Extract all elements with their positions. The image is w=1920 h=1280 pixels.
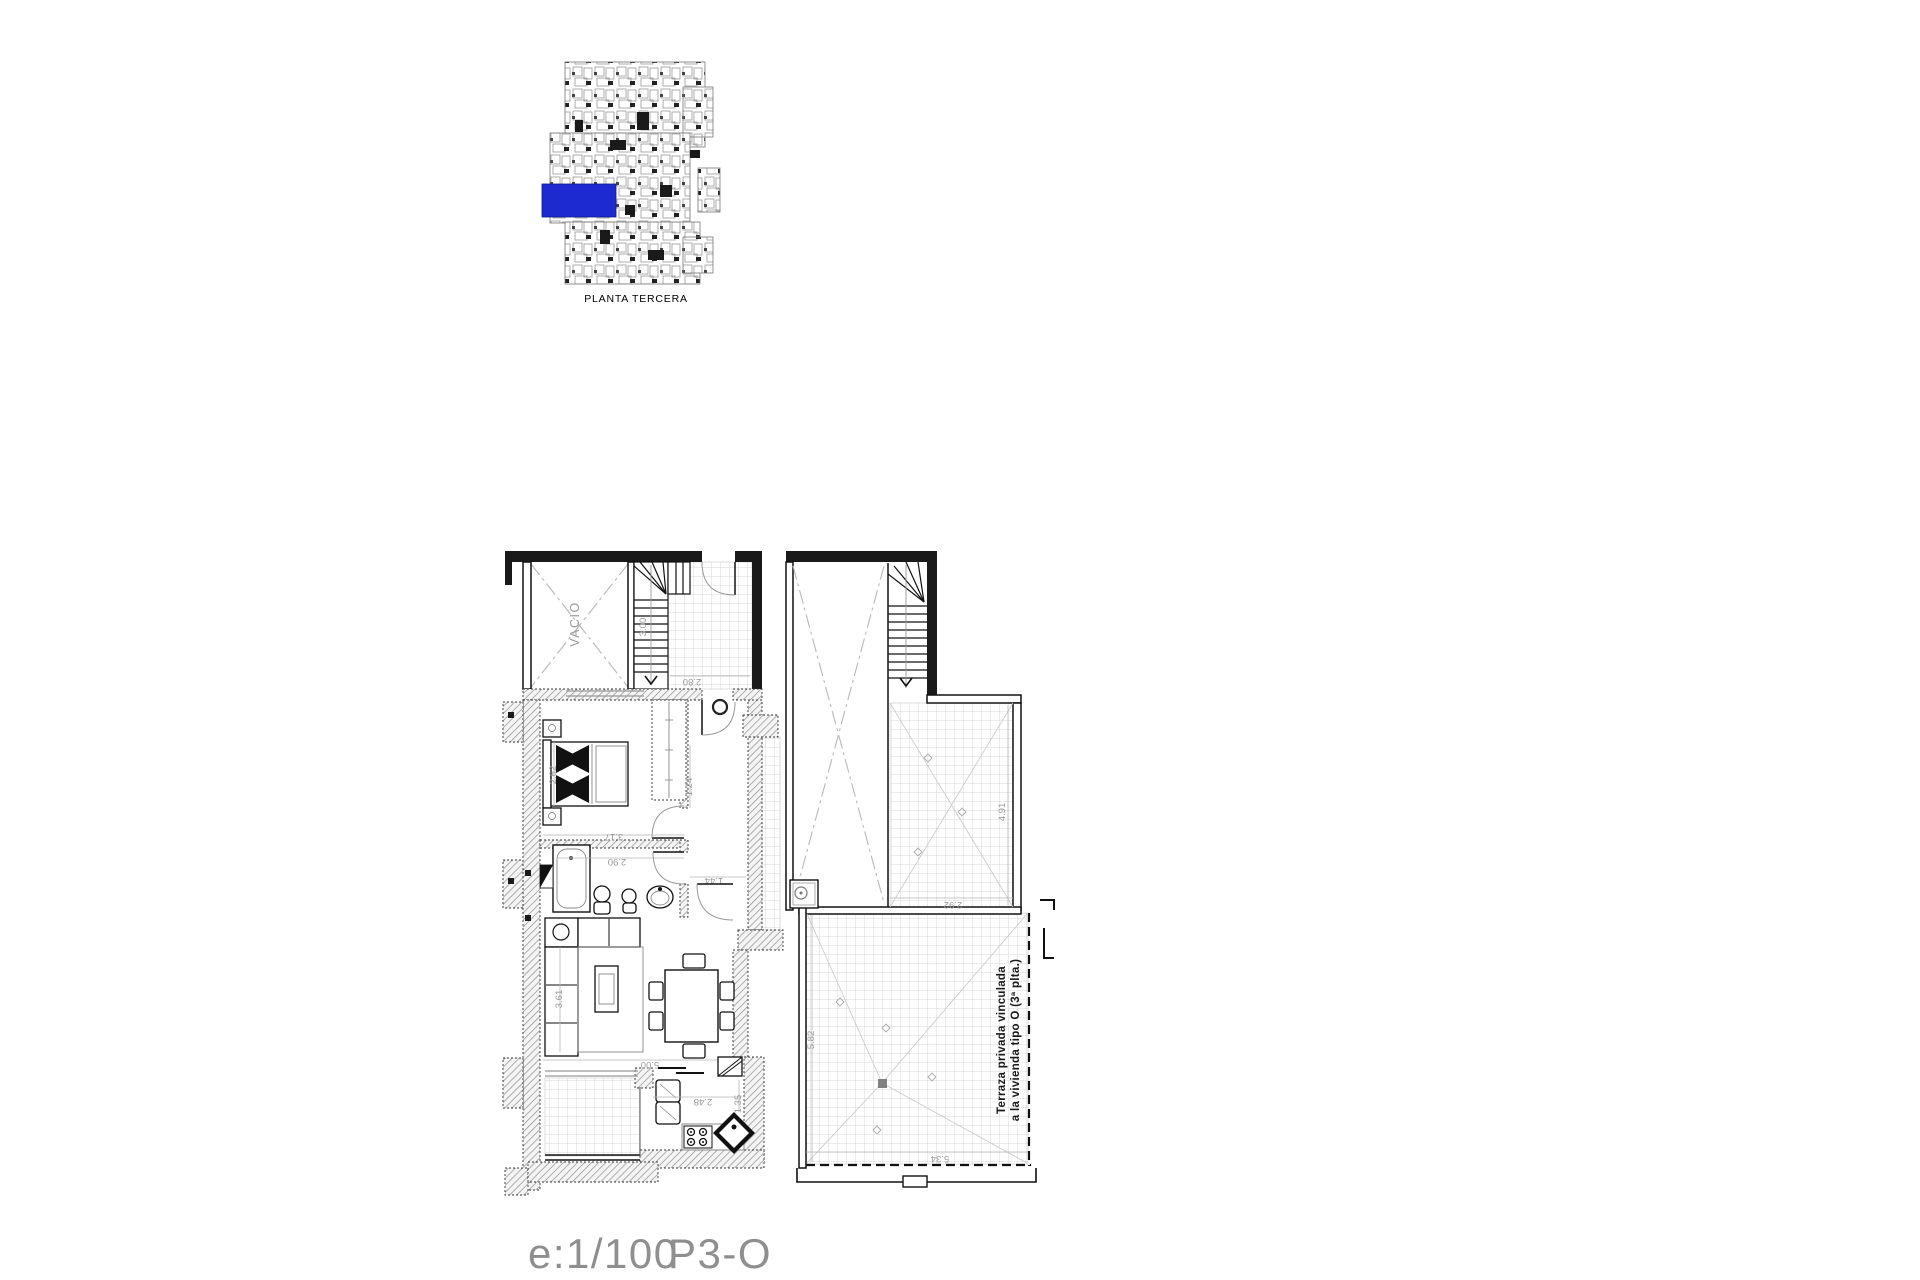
living-window: [545, 1071, 638, 1076]
floor-plan-page: PLANTA TERCERA VACIO: [0, 0, 1920, 1280]
dim-main-terrace-depth: 5.82: [806, 1031, 817, 1050]
void-label: VACIO: [568, 601, 582, 646]
dim-kitchen-width: 2.48: [694, 1096, 713, 1107]
void-area: VACIO: [531, 564, 628, 687]
key-plan-title: PLANTA TERCERA: [584, 293, 688, 305]
bathtub: [553, 845, 590, 912]
bedroom: 3.17 2.62: [543, 691, 686, 842]
dim-main-terrace-width: 5.34: [931, 1153, 950, 1164]
key-plan-building-footprint: [550, 62, 720, 284]
side-table: [545, 918, 578, 947]
kitchen-slider: [658, 1068, 704, 1073]
hob: [684, 1126, 712, 1148]
solarium-room: [790, 566, 884, 908]
dim-upper-terrace-width: 2.92: [944, 899, 963, 910]
key-plan-unit-highlight: [542, 184, 616, 217]
dim-bedroom-depth: 2.62: [548, 766, 559, 785]
bathroom: 2.90: [540, 845, 684, 914]
washer-niche: [540, 865, 553, 888]
toilet: [594, 886, 610, 914]
bathroom-door: [653, 852, 684, 884]
dim-kitchen-depth: 1.35: [733, 1095, 744, 1114]
balcony-floor: [545, 1078, 640, 1156]
living-room: 5.00 3.61: [543, 918, 745, 1076]
side-gallery-floor: [762, 737, 780, 930]
hall: 1.24 1.44: [684, 745, 746, 920]
apartment-plan: VACIO 3.00: [503, 551, 783, 1195]
dim-entry-terrace: 2.80: [683, 676, 702, 687]
key-plan: PLANTA TERCERA: [542, 62, 720, 305]
dim-bedroom-width: 3.17: [605, 831, 624, 842]
washbasin: [647, 886, 673, 908]
staircase-upper: [888, 562, 927, 688]
entry-floor-mark: [713, 700, 727, 714]
bedroom-door: [652, 806, 684, 838]
hall-living-door: [697, 884, 733, 920]
fridge: [656, 1080, 680, 1124]
shower-tray: [790, 880, 818, 908]
dim-living-depth: 3.61: [554, 990, 565, 1009]
dim-corridor-width: 1.24: [684, 778, 695, 797]
dim-bathroom-width: 2.90: [608, 856, 627, 867]
scale-label: e:1/100: [528, 1230, 679, 1277]
dining-set: [649, 954, 734, 1058]
plan-code-label: P3-O: [668, 1230, 772, 1277]
terrace-center-mark: [878, 1079, 887, 1088]
main-terrace-floor: [806, 913, 1028, 1164]
bidet: [622, 889, 636, 913]
floor-plan-drawing: PLANTA TERCERA VACIO: [0, 0, 1920, 1280]
wardrobe: [652, 700, 686, 800]
kitchen: 2.48 1.35: [653, 1080, 755, 1154]
coffee-table: [595, 966, 618, 1012]
terrace-plan: 4.91 2.92 5.82 5.34 Terraza privada vinc…: [786, 551, 1054, 1187]
kitchen-window: [718, 1057, 742, 1076]
dim-living-width: 5.00: [641, 1059, 660, 1070]
terrace-note-line2: a la vivienda tipo O (3ª plta.): [1010, 959, 1022, 1121]
dim-stair-run: 3.00: [638, 618, 649, 637]
dim-upper-terrace-depth: 4.91: [997, 803, 1008, 822]
terrace-note-line1: Terraza privada vinculada: [996, 966, 1008, 1114]
